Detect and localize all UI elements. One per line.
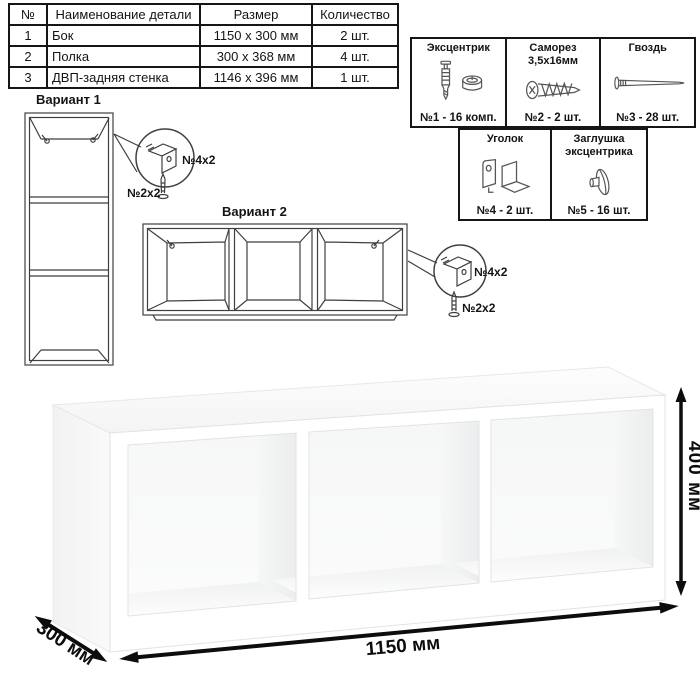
hardware-box-top: Эксцентрик №1 - 16 комп. Саморез3,5х16мм xyxy=(410,37,696,128)
base-strip xyxy=(153,315,397,320)
bracket-icon xyxy=(441,257,471,286)
part-qty: 2 шт. xyxy=(312,25,398,46)
part-name: Полка xyxy=(47,46,200,67)
cam-cap-icon xyxy=(576,158,622,205)
hardware-cell-cap: Заглушкаэксцентрика №5 - 16 шт. xyxy=(550,130,646,219)
part-size: 1150 х 300 мм xyxy=(200,25,312,46)
variant1-screw-label: №2х2 xyxy=(127,186,160,200)
part-size: 1146 х 396 мм xyxy=(200,67,312,88)
assembly-instruction-sheet: № Наименование детали Размер Количество … xyxy=(0,0,700,690)
bracket-icon xyxy=(146,144,176,173)
screw-icon xyxy=(520,67,586,112)
cam-screw-marks xyxy=(167,240,379,248)
variant1-title: Вариант 1 xyxy=(36,92,101,107)
col-header-name: Наименование детали xyxy=(47,4,200,25)
hardware-cell-bracket: Уголок №4 - 2 шт. xyxy=(460,130,550,219)
col-header-qty: Количество xyxy=(312,4,398,25)
callout-leader xyxy=(408,250,437,277)
variant2-screw-label: №2х2 xyxy=(462,301,495,315)
height-dimension-label: 400 мм xyxy=(683,441,700,512)
nail-icon xyxy=(609,55,687,112)
cam-bolt-and-cam-icon xyxy=(425,55,491,112)
part-num: 3 xyxy=(9,67,47,88)
variant2-bracket-label: №4х2 xyxy=(474,265,507,279)
variant1-drawing xyxy=(25,113,194,365)
variant2-title: Вариант 2 xyxy=(222,204,287,219)
part-size: 300 х 368 мм xyxy=(200,46,312,67)
part-num: 2 xyxy=(9,46,47,67)
col-header-num: № xyxy=(9,4,47,25)
part-qty: 1 шт. xyxy=(312,67,398,88)
parts-table: № Наименование детали Размер Количество … xyxy=(8,3,399,89)
hardware-cell-cam: Эксцентрик №1 - 16 комп. xyxy=(412,39,505,126)
col-header-size: Размер xyxy=(200,4,312,25)
table-row: 1 Бок 1150 х 300 мм 2 шт. xyxy=(9,25,398,46)
hardware-cell-nail: Гвоздь №3 - 28 шт. xyxy=(599,39,694,126)
shelf-3d-render xyxy=(53,367,675,665)
variant2-drawing xyxy=(143,224,486,320)
variant1-bracket-label: №4х2 xyxy=(182,153,215,167)
hardware-box-bottom: Уголок №4 - 2 шт. Заглушкаэксцентрика xyxy=(458,128,648,221)
table-row: 3 ДВП-задняя стенка 1146 х 396 мм 1 шт. xyxy=(9,67,398,88)
part-qty: 4 шт. xyxy=(312,46,398,67)
parts-table-header-row: № Наименование детали Размер Количество xyxy=(9,4,398,25)
table-row: 2 Полка 300 х 368 мм 4 шт. xyxy=(9,46,398,67)
part-name: ДВП-задняя стенка xyxy=(47,67,200,88)
corner-bracket-icon xyxy=(474,146,536,205)
hardware-cell-screw: Саморез3,5х16мм №2 - 2 шт. xyxy=(505,39,600,126)
part-num: 1 xyxy=(9,25,47,46)
part-name: Бок xyxy=(47,25,200,46)
